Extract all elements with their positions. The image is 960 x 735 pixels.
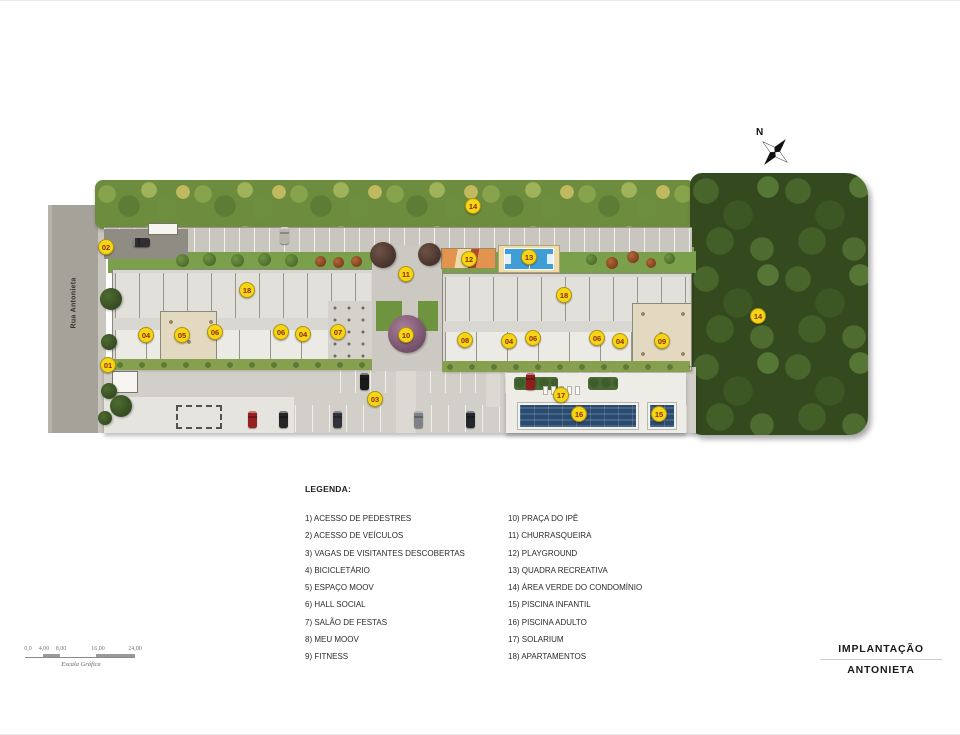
shrub-red [606,257,618,269]
legend-item: 1) ACESSO DE PEDESTRES [305,510,465,527]
legend-column-2: 10) PRAÇA DO IPÊ11) CHURRASQUEIRA12) PLA… [508,510,642,666]
compass-star-icon [758,135,792,169]
tree-band-north [95,180,695,229]
legend-item: 10) PRAÇA DO IPÊ [508,510,642,527]
compass-north: N [740,125,796,173]
legend-item: 13) QUADRA RECREATIVA [508,562,642,579]
legend-item: 4) BICICLETÁRIO [305,562,465,579]
shrub [231,254,244,267]
tree [101,334,117,350]
legend-item: 7) SALÃO DE FESTAS [305,614,465,631]
forest-area-verde [690,173,868,435]
legend-item: 5) ESPAÇO MOOV [305,579,465,596]
tree [98,411,112,425]
scale-segment [96,654,135,657]
gatehouse [148,223,178,235]
scale-caption: Escala Gráfica [25,661,137,668]
tree [110,395,132,417]
shrub [203,253,216,266]
site-plan-page: Rua Antonieta 02010405061806040714111213… [0,0,960,735]
shrub [664,253,675,264]
shrub [285,254,298,267]
terrace-salao-festas [328,301,372,361]
street-name-label: Rua Antonieta [71,281,78,329]
scale-tick: 24,00 [128,646,142,652]
legend-item: 14) ÁREA VERDE DO CONDOMÍNIO [508,579,642,596]
shrub-red [333,257,344,268]
legend-item: 2) ACESSO DE VEÍCULOS [305,527,465,544]
walkway [486,367,500,407]
project-name: ANTONIETA [820,664,942,676]
legend-item: 11) CHURRASQUEIRA [508,527,642,544]
pool-adult [518,403,638,429]
legend-item: 9) FITNESS [305,648,465,665]
scale-tick: 0,0 [24,646,32,652]
legend-item: 18) APARTAMENTOS [508,648,642,665]
scale-tick: 16,00 [91,646,105,652]
legend-item: 17) SOLARIUM [508,631,642,648]
shrub [586,254,597,265]
tree [370,242,396,268]
car [280,227,289,244]
legend-item: 3) VAGAS DE VISITANTES DESCOBERTAS [305,545,465,562]
legend-item: 12) PLAYGROUND [508,545,642,562]
scale-bar: 0,04,008,0016,0024,00 Escala Gráfica [25,646,143,672]
tree [100,288,122,310]
garden-patio [442,361,690,372]
sun-lounger [575,386,580,395]
shrub-red [315,256,326,267]
scale-tick: 8,00 [56,646,67,652]
car [466,411,475,428]
legend-item: 6) HALL SOCIAL [305,596,465,613]
shrub-red [351,256,362,267]
scale-tick: 4,00 [39,646,50,652]
sun-lounger [551,386,556,395]
pool-infant [648,403,676,429]
fitness-building [632,303,692,367]
sun-lounger [567,386,572,395]
title-divider [820,659,942,660]
pool-hedge [588,377,618,390]
car [414,411,423,428]
car [133,238,150,247]
legend-heading: LEGENDA: [305,484,351,494]
playground-area [441,248,496,269]
shrub [258,253,271,266]
car [248,411,257,428]
legend-item: 15) PISCINA INFANTIL [508,596,642,613]
shrub-red [646,258,656,268]
title-block: IMPLANTAÇÃO ANTONIETA [820,643,942,676]
page-title: IMPLANTAÇÃO [820,643,942,655]
car [333,411,342,428]
scale-line [25,657,135,658]
scale-ticks: 0,04,008,0016,0024,00 [25,646,137,654]
legend-item: 8) MEU MOOV [305,631,465,648]
legend-column-1: 1) ACESSO DE PEDESTRES2) ACESSO DE VEÍCU… [305,510,465,666]
marked-bay [176,405,222,429]
garden-patio [112,359,372,370]
scale-segment [43,654,60,657]
sports-court [504,248,554,270]
sun-lounger [543,386,548,395]
espaco-moov-area [160,311,217,361]
shrub-red [627,251,639,263]
car [360,373,369,390]
legend-item: 16) PISCINA ADULTO [508,614,642,631]
shrub [176,254,189,267]
sun-lounger [559,386,564,395]
car [526,373,535,390]
ipe-tree [388,315,426,353]
car [279,411,288,428]
tree [418,243,441,266]
